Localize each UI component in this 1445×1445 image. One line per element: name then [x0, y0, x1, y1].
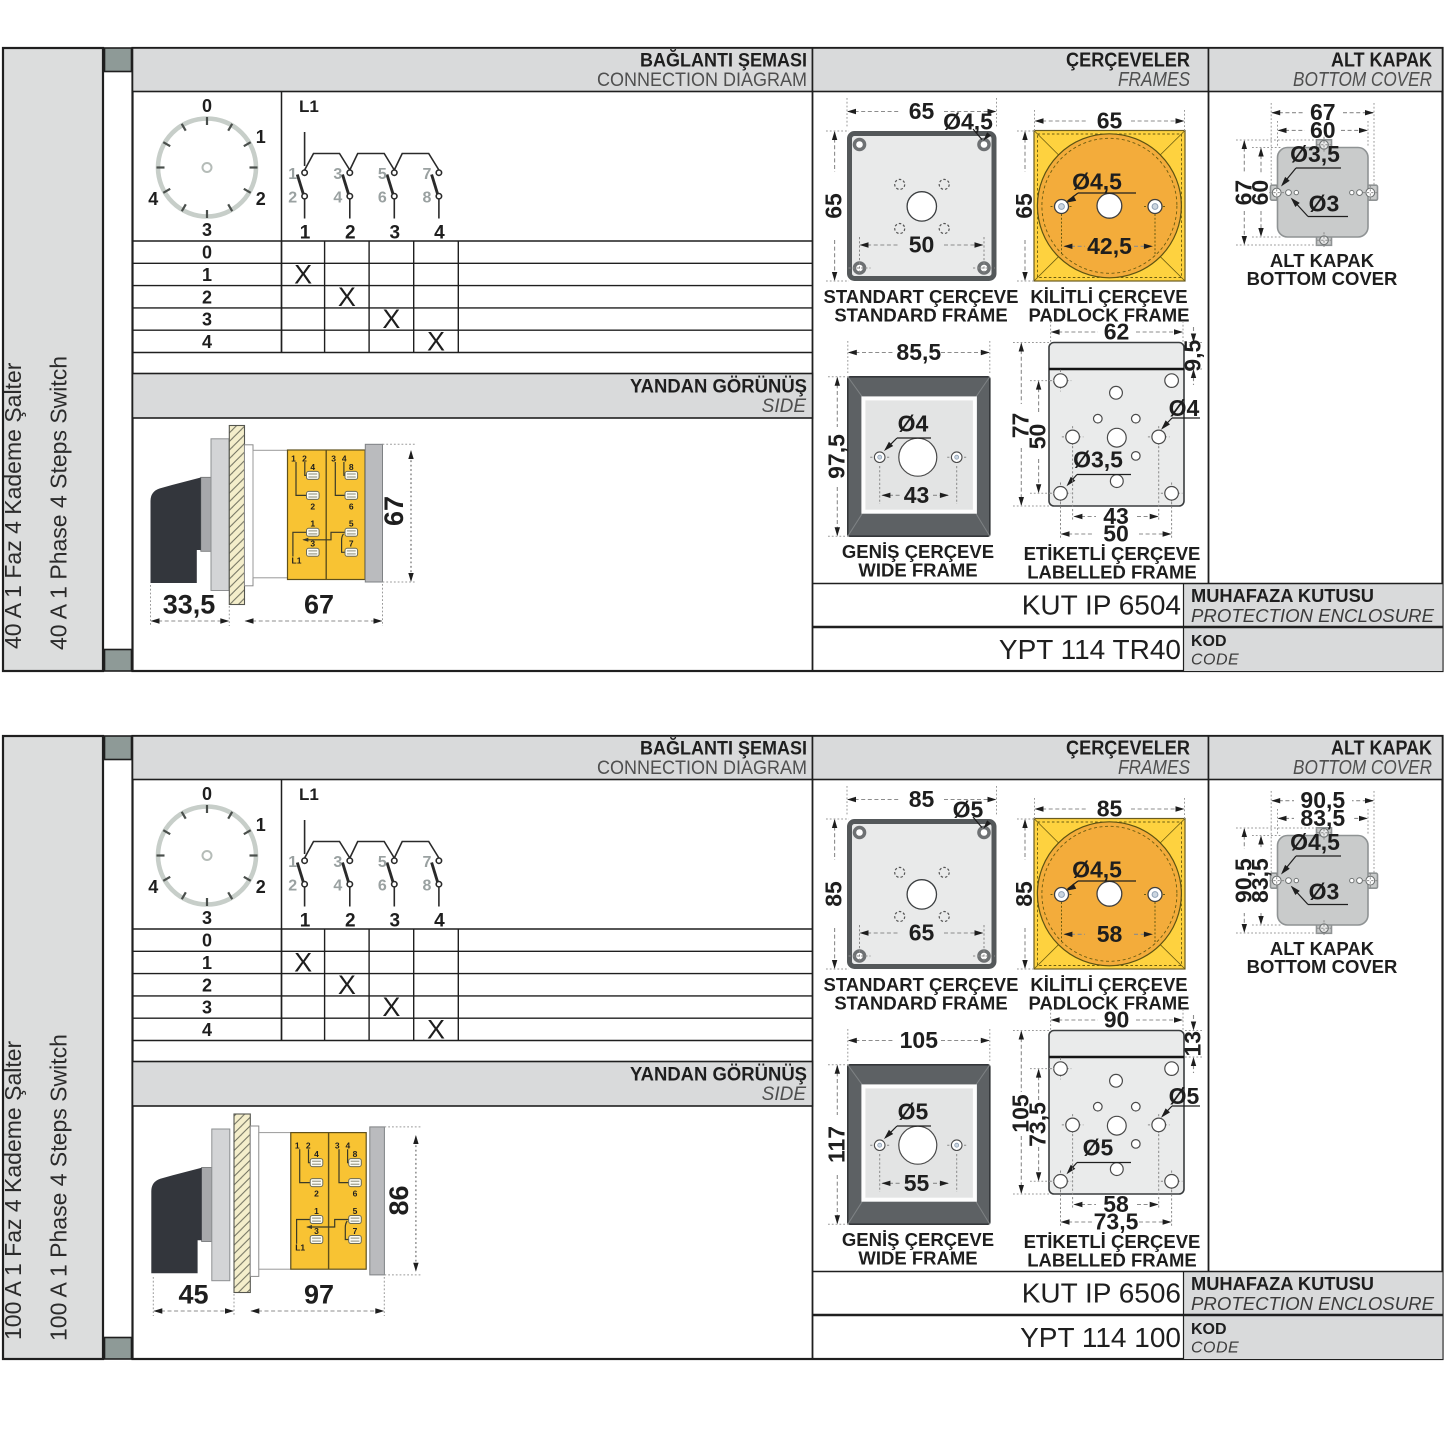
- svg-text:Ø4: Ø4: [1169, 395, 1200, 421]
- svg-text:100 A 1 Faz 4 Kademe Şalter: 100 A 1 Faz 4 Kademe Şalter: [0, 1040, 26, 1340]
- svg-text:KUT IP 6506: KUT IP 6506: [1022, 1278, 1181, 1309]
- svg-text:85: 85: [1097, 796, 1123, 822]
- svg-text:Ø3: Ø3: [1309, 879, 1340, 905]
- svg-text:Ø4,5: Ø4,5: [1072, 857, 1122, 883]
- svg-text:Ø3,5: Ø3,5: [1073, 447, 1123, 473]
- svg-text:Ø4,5: Ø4,5: [1290, 829, 1340, 855]
- svg-text:Ø5: Ø5: [953, 797, 984, 823]
- svg-text:85: 85: [1011, 881, 1037, 907]
- svg-text:50: 50: [909, 232, 935, 258]
- svg-text:90: 90: [1104, 1007, 1130, 1033]
- svg-text:117: 117: [823, 1126, 849, 1163]
- svg-text:45: 45: [178, 1280, 208, 1310]
- svg-text:Ø4: Ø4: [898, 411, 929, 437]
- svg-text:YPT 114 100: YPT 114 100: [1020, 1322, 1181, 1353]
- svg-text:40 A 1 Phase 4 Steps Switch: 40 A 1 Phase 4 Steps Switch: [46, 356, 72, 650]
- svg-text:105: 105: [900, 1027, 939, 1053]
- svg-text:Ø5: Ø5: [1083, 1135, 1114, 1161]
- svg-text:67: 67: [379, 496, 409, 526]
- svg-text:85,5: 85,5: [896, 339, 941, 365]
- svg-text:86: 86: [384, 1185, 414, 1215]
- svg-text:65: 65: [1011, 193, 1037, 219]
- svg-text:33,5: 33,5: [163, 590, 216, 620]
- svg-text:KUT IP 6504: KUT IP 6504: [1022, 590, 1181, 621]
- svg-text:83,5: 83,5: [1300, 805, 1345, 831]
- svg-text:Ø3: Ø3: [1309, 191, 1340, 217]
- svg-text:65: 65: [909, 920, 935, 946]
- svg-text:100 A 1 Phase 4 Steps Switch: 100 A 1 Phase 4 Steps Switch: [46, 1034, 72, 1341]
- svg-text:60: 60: [1247, 180, 1273, 206]
- svg-text:83,5: 83,5: [1247, 858, 1273, 903]
- svg-text:40 A 1 Faz 4 Kademe Şalter: 40 A 1 Faz 4 Kademe Şalter: [0, 362, 26, 649]
- svg-text:58: 58: [1097, 921, 1123, 947]
- svg-text:50: 50: [1103, 521, 1129, 547]
- svg-text:62: 62: [1104, 319, 1130, 345]
- svg-text:Ø5: Ø5: [1169, 1083, 1200, 1109]
- svg-text:13: 13: [1180, 1031, 1206, 1057]
- svg-text:YPT 114 TR40: YPT 114 TR40: [999, 634, 1181, 665]
- svg-text:Ø3,5: Ø3,5: [1290, 141, 1340, 167]
- svg-text:97: 97: [304, 1280, 334, 1310]
- svg-text:73,5: 73,5: [1094, 1209, 1139, 1235]
- svg-text:85: 85: [821, 881, 847, 907]
- svg-text:Ø4,5: Ø4,5: [943, 109, 993, 135]
- svg-text:Ø4,5: Ø4,5: [1072, 169, 1122, 195]
- svg-text:65: 65: [909, 98, 935, 124]
- svg-text:85: 85: [909, 786, 935, 812]
- svg-text:42,5: 42,5: [1087, 233, 1132, 259]
- svg-text:50: 50: [1025, 424, 1051, 450]
- svg-text:97,5: 97,5: [823, 434, 849, 479]
- svg-text:65: 65: [1097, 108, 1123, 134]
- svg-text:73,5: 73,5: [1025, 1102, 1051, 1147]
- svg-text:9,5: 9,5: [1180, 340, 1206, 372]
- svg-text:67: 67: [304, 590, 334, 620]
- svg-text:Ø5: Ø5: [898, 1099, 929, 1125]
- svg-text:55: 55: [904, 1170, 930, 1196]
- svg-text:60: 60: [1310, 117, 1336, 143]
- svg-text:65: 65: [821, 193, 847, 219]
- svg-text:43: 43: [904, 482, 930, 508]
